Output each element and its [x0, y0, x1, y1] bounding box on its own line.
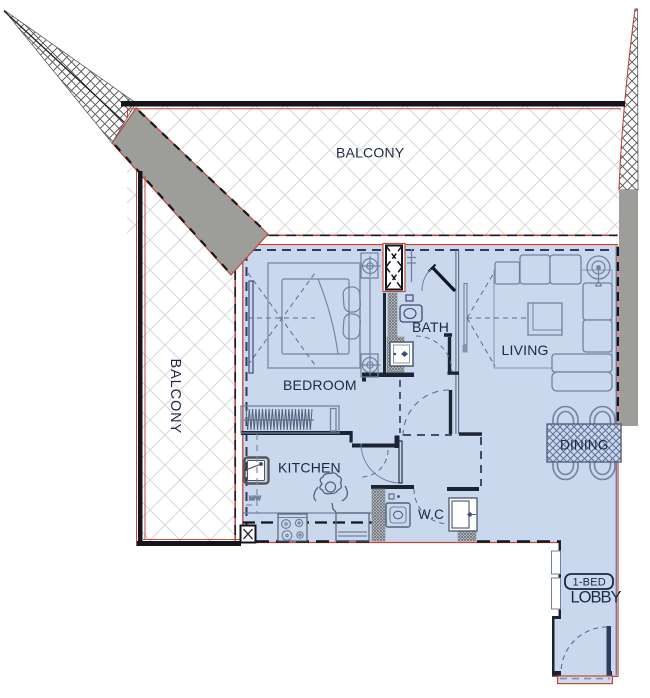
svg-text:BALCONY: BALCONY: [167, 359, 183, 435]
svg-text:BALCONY: BALCONY: [336, 145, 405, 161]
svg-text:DINING: DINING: [560, 438, 608, 453]
svg-text:LIVING: LIVING: [502, 342, 549, 358]
svg-text:BATH: BATH: [412, 319, 449, 335]
svg-text:M/W: M/W: [249, 496, 262, 502]
svg-text:LOBBY: LOBBY: [571, 589, 622, 607]
svg-text:KITCHEN: KITCHEN: [278, 460, 341, 476]
svg-text:W.C: W.C: [418, 507, 444, 522]
svg-text:BEDROOM: BEDROOM: [283, 377, 357, 393]
svg-text:1-BED: 1-BED: [573, 577, 606, 589]
